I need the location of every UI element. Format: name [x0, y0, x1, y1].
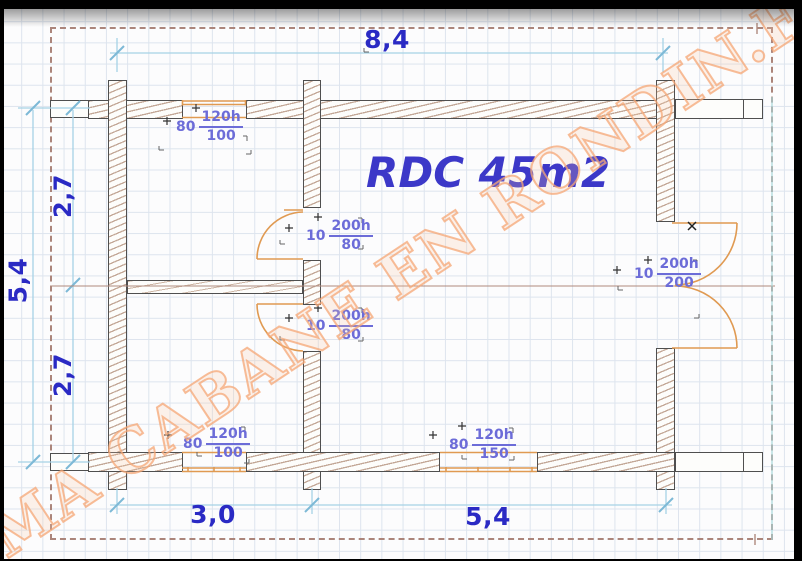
opening-width: 150 [479, 446, 508, 462]
sill-height: 80 [449, 438, 468, 453]
opening-width: 100 [213, 445, 242, 461]
letterbox-right-bar [794, 0, 802, 561]
dimension-bottom-left-label: 3,0 [178, 502, 248, 527]
opening-size-fraction: 120h 150 [472, 428, 515, 463]
dimension-left-lower-label: 2,7 [51, 347, 75, 403]
dimension-bottom-right-label: 5,4 [453, 504, 523, 529]
log-end-top-left [50, 100, 89, 118]
wall-top-left-segment [88, 100, 183, 119]
annotation-bottom-right-window: 80 120h 150 [449, 428, 516, 463]
wall-bottom-right-segment [537, 452, 675, 472]
wall-bottom-middle-segment [246, 452, 440, 472]
opening-height: 200h [657, 257, 700, 275]
wall-middle-upper [303, 80, 321, 208]
log-end-bottom-right [675, 452, 763, 472]
dimension-left-upper-label: 2,7 [51, 168, 75, 224]
opening-width: 200 [664, 275, 693, 291]
dimension-left-total-label: 5,4 [6, 253, 31, 309]
opening-width: 100 [206, 128, 235, 144]
opening-size-fraction: 200h 80 [329, 219, 372, 254]
letterbox-left-bar [0, 0, 4, 561]
sill-height: 10 [306, 229, 325, 244]
opening-size-fraction: 120h 100 [199, 110, 242, 145]
annotation-right-door: 10 200h 200 [634, 257, 701, 292]
letterbox-top-fade [0, 9, 802, 27]
dimension-top-label: 8,4 [352, 27, 422, 52]
opening-height: 120h [472, 428, 515, 446]
floorplan-canvas: 8,4 5,4 2,7 2,7 3,0 5,4 80 120h 100 10 2… [0, 0, 802, 561]
sill-height: 10 [634, 267, 653, 282]
opening-size-fraction: 200h 200 [657, 257, 700, 292]
opening-height: 120h [199, 110, 242, 128]
wall-interior-horizontal [127, 280, 303, 294]
letterbox-top-bar [0, 0, 802, 9]
opening-height: 200h [329, 219, 372, 237]
sill-height: 80 [176, 120, 195, 135]
opening-width: 80 [341, 237, 360, 253]
annotation-upper-door: 10 200h 80 [306, 219, 373, 254]
annotation-top-window: 80 120h 100 [176, 110, 243, 145]
